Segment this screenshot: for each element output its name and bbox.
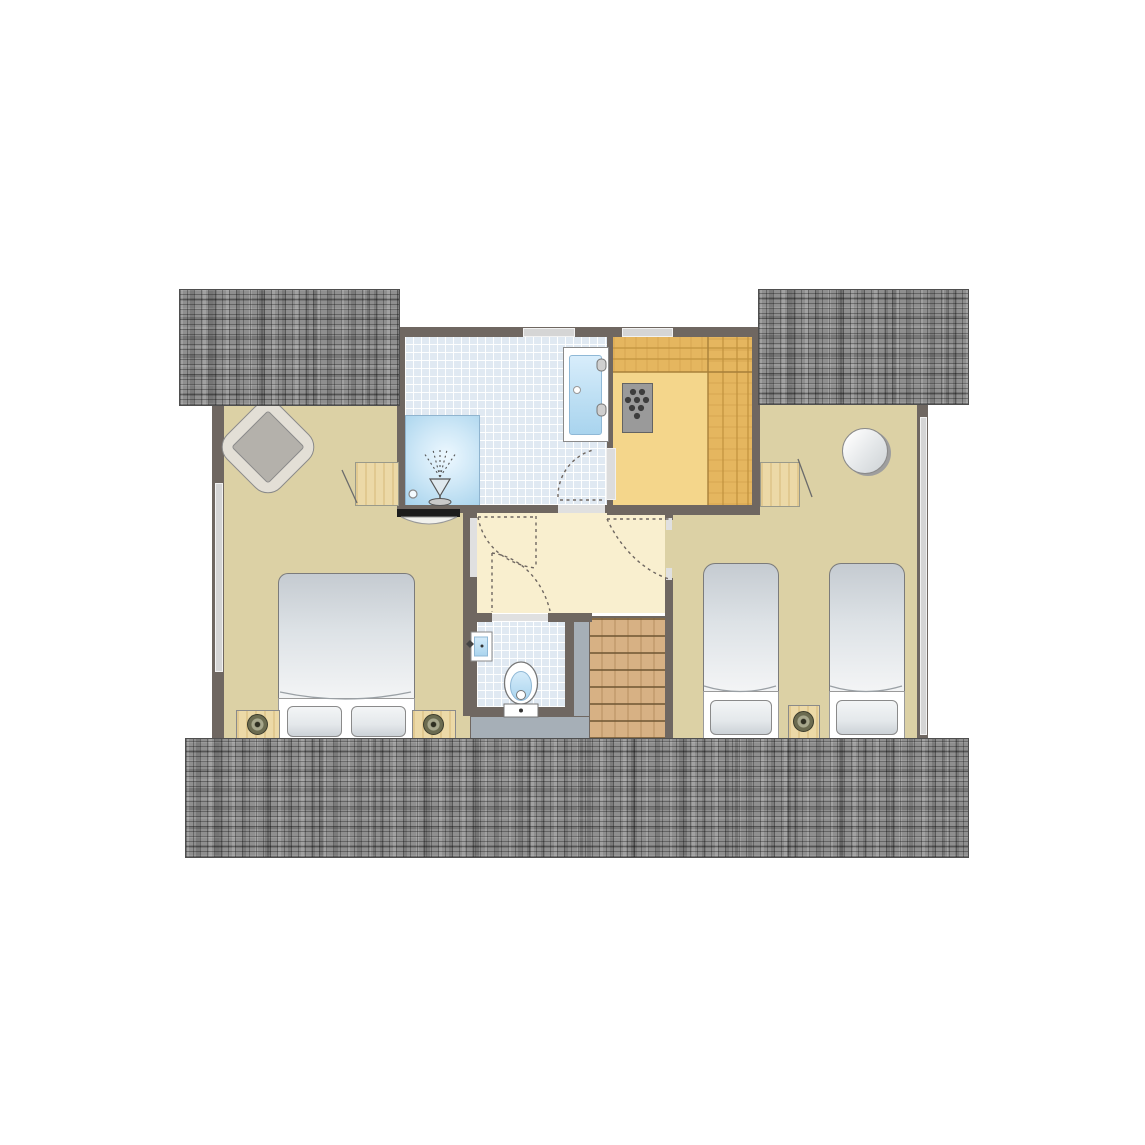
round-table-top <box>842 428 888 474</box>
wall-hall-south-a <box>463 613 492 622</box>
roof-top-left <box>179 289 400 406</box>
window-east <box>920 417 927 735</box>
bedroom-right-door-jamb-top <box>666 518 672 530</box>
roof-bottom <box>185 738 969 858</box>
bedroom-left-door-jamb <box>470 518 477 577</box>
sauna-door <box>606 448 616 500</box>
wall-sauna-south <box>607 505 760 515</box>
roof-top-right <box>758 289 969 405</box>
single-bed-2-duvet <box>829 563 905 694</box>
wall-hall-east-b <box>665 578 673 738</box>
double-bed-duvet <box>278 573 415 701</box>
single-bed-2-pillow <box>836 700 898 735</box>
lamp-middle <box>793 711 814 732</box>
sauna-bench-right <box>708 337 752 505</box>
sauna-heater <box>622 383 653 433</box>
wc-floor <box>477 622 565 707</box>
desk-right <box>760 462 800 507</box>
window-west <box>215 483 223 672</box>
stair-landing <box>470 716 590 740</box>
pillow-1 <box>287 706 342 737</box>
floor-plan-canvas <box>0 0 1145 1145</box>
pillow-2 <box>351 706 406 737</box>
single-bed-1-pillow <box>710 700 772 735</box>
desk-left <box>355 462 399 506</box>
staircase <box>588 616 665 740</box>
bedroom-right-door-jamb-bottom <box>666 568 672 580</box>
shower <box>405 415 480 507</box>
hallway-floor <box>477 513 665 613</box>
wardrobe-rail <box>397 509 460 517</box>
round-table <box>845 430 891 476</box>
lamp-left <box>247 714 268 735</box>
lamp-right <box>423 714 444 735</box>
washbasin-basin <box>569 355 602 435</box>
window-north-2 <box>622 328 673 337</box>
wall-hall-south-b <box>548 613 592 622</box>
wall-wc-south <box>463 707 573 716</box>
wc-door-threshold <box>492 614 548 621</box>
single-bed-1-duvet <box>703 563 779 694</box>
bathroom-door-threshold <box>558 505 605 513</box>
window-north-1 <box>523 328 575 337</box>
wall-wc-east <box>565 622 573 715</box>
wall-north <box>397 327 760 337</box>
